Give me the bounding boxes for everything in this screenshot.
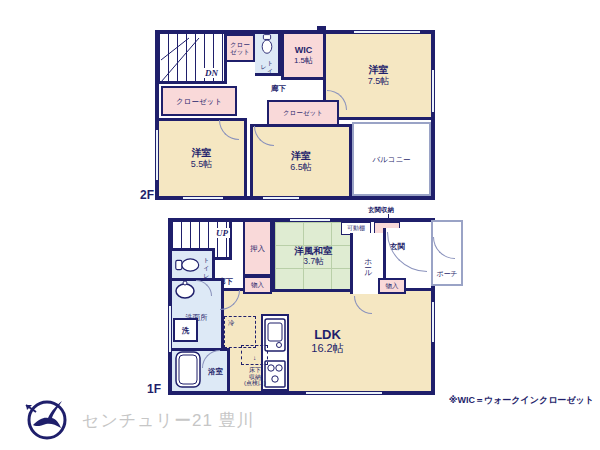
movable-shelf-label: 可動棚 — [347, 225, 365, 232]
window-segment — [155, 130, 159, 180]
room-size: 5.5帖 — [191, 159, 213, 170]
floor2-label: 2F — [140, 188, 154, 202]
toilet-2f: トイレ — [255, 34, 281, 76]
storage-label: 物入 — [251, 281, 264, 288]
room-name: 洋室 — [192, 147, 212, 159]
closet-label: クローゼット — [283, 109, 323, 116]
window-segment — [306, 391, 382, 395]
underfloor-storage-label: 床下 収納 (点検口) — [236, 367, 274, 387]
closet-top: クローゼット — [225, 34, 255, 62]
room-size: 16.2帖 — [311, 342, 343, 355]
underfloor-storage-box: ↓ — [241, 345, 268, 365]
toilet-icon — [259, 34, 275, 54]
floor1-label: 1F — [147, 382, 161, 396]
window-segment — [354, 30, 420, 34]
window-segment — [168, 306, 172, 352]
wic-room: WIC 1.5帖 — [281, 34, 323, 80]
porch-label: ポーチ — [436, 270, 457, 278]
wic-footnote: ※WIC＝ウォークインクローゼット — [449, 394, 594, 407]
storage-right: 物入 — [378, 278, 406, 294]
toilet-icon — [175, 257, 201, 273]
washer-box: 洗 — [173, 318, 198, 342]
room-size: 7.5帖 — [368, 76, 390, 87]
sink-icon — [174, 280, 196, 300]
stairs-direction-label: UP — [214, 228, 230, 238]
window-segment — [431, 302, 435, 342]
wic-name: WIC — [295, 45, 313, 56]
window-segment — [263, 196, 299, 200]
fridge-space: 冷 — [224, 316, 256, 348]
hallway-label: 廊下 — [271, 84, 286, 94]
window-segment — [431, 70, 435, 112]
room-name: LDK — [314, 327, 341, 343]
floor2-plan: 洋室 7.5帖 洋室 5.5帖 洋室 6.5帖 バルコニー DN クローゼット … — [155, 30, 435, 200]
room-size: 6.5帖 — [290, 162, 312, 173]
room-name: 洋室 — [369, 64, 389, 76]
toilet-label: トイレ — [203, 253, 210, 277]
closet-label: クローゼット — [227, 41, 253, 56]
toilet-1f: トイレ — [172, 248, 215, 278]
bathtub-icon — [175, 351, 201, 388]
closet-left: クローゼット — [161, 86, 237, 116]
stairs-direction-label: DN — [203, 68, 220, 78]
brand-text: センチュリー21 豊川 — [82, 409, 255, 432]
pillar-mark — [317, 26, 326, 33]
wic-size: 1.5帖 — [294, 56, 313, 66]
closet-label: クローゼット — [176, 97, 222, 106]
oshiire-label: 押入 — [250, 244, 265, 253]
window-segment — [183, 196, 223, 200]
storage-left: 物入 — [243, 276, 272, 294]
callout-line — [388, 214, 389, 223]
fridge-label: 冷 — [228, 319, 235, 326]
window-segment — [290, 218, 330, 222]
washer-label: 洗 — [182, 326, 190, 335]
hall-label: ホール — [364, 253, 373, 273]
storage-label: 物入 — [386, 282, 399, 289]
down-arrow-icon: ↓ — [253, 354, 256, 361]
century21-logo — [22, 395, 70, 443]
balcony: バルコニー — [352, 122, 431, 196]
entrance-storage-label: 玄関収納 — [368, 206, 394, 213]
room-name: 洋室 — [291, 150, 311, 162]
room-name: 洋風和室 — [295, 245, 333, 256]
floor1-plan: LDK 16.2帖 洋風和室 3.7帖 押入 物入 UP 可動棚 ホール 玄関 — [168, 218, 435, 395]
room-size: 3.7帖 — [303, 256, 323, 266]
balcony-label: バルコニー — [372, 155, 410, 164]
oshiire-closet: 押入 — [243, 222, 272, 276]
floor-plan-canvas: 洋室 7.5帖 洋室 5.5帖 洋室 6.5帖 バルコニー DN クローゼット … — [0, 0, 600, 450]
toilet-label: トイレ — [260, 54, 273, 73]
